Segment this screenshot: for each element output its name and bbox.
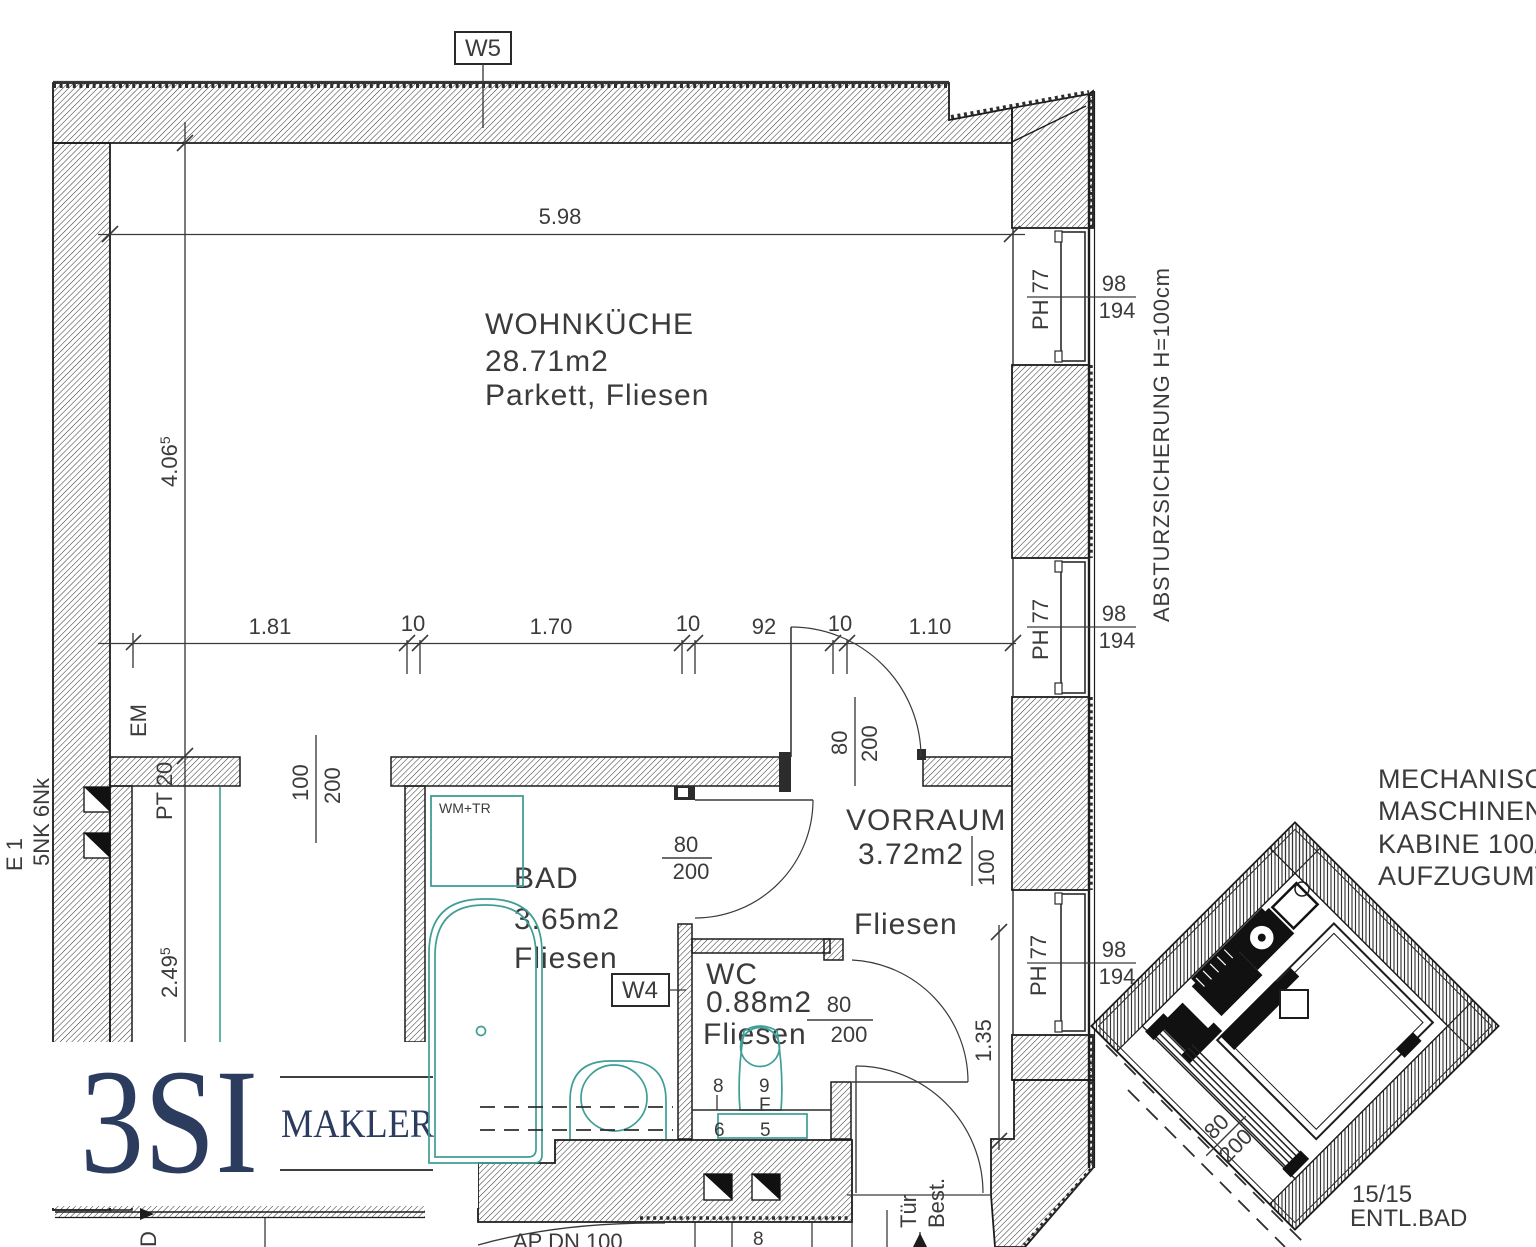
svg-text:194: 194: [1099, 628, 1136, 653]
svg-text:F: F: [759, 1095, 771, 1116]
svg-text:VORRAUM: VORRAUM: [846, 804, 1006, 837]
svg-text:W4: W4: [622, 977, 658, 1004]
svg-text:194: 194: [1099, 298, 1136, 323]
svg-text:5.98: 5.98: [539, 204, 582, 229]
svg-text:100: 100: [974, 849, 999, 886]
svg-text:Fliesen: Fliesen: [854, 908, 958, 941]
svg-text:15/15: 15/15: [1352, 1181, 1412, 1208]
svg-text:2.495: 2.495: [157, 947, 182, 998]
svg-text:10: 10: [401, 611, 425, 636]
svg-text:92: 92: [752, 614, 776, 639]
svg-text:MASCHINENRAU: MASCHINENRAU: [1378, 796, 1536, 826]
svg-text:80: 80: [674, 832, 698, 857]
svg-text:3SI: 3SI: [80, 1039, 258, 1205]
svg-text:Parkett, Fliesen: Parkett, Fliesen: [485, 379, 709, 412]
svg-text:10: 10: [828, 611, 852, 636]
svg-text:Tür: Tür: [896, 1195, 921, 1228]
svg-text:28.71m2: 28.71m2: [485, 345, 609, 378]
svg-text:200: 200: [673, 859, 710, 884]
svg-text:W5: W5: [465, 35, 501, 62]
svg-text:Fliesen: Fliesen: [703, 1018, 807, 1051]
svg-text:AP DN 100: AP DN 100: [513, 1229, 623, 1247]
svg-text:MAKLER: MAKLER: [281, 1101, 434, 1146]
svg-text:EM: EM: [126, 704, 151, 737]
svg-text:100: 100: [288, 764, 313, 801]
svg-text:PH 77: PH 77: [1028, 269, 1053, 330]
svg-text:PH 77: PH 77: [1026, 935, 1051, 996]
svg-text:5NK 6Nk: 5NK 6Nk: [29, 777, 54, 866]
svg-text:PH 77: PH 77: [1028, 599, 1053, 660]
svg-text:AUFZUGUMWEH: AUFZUGUMWEH: [1378, 861, 1536, 891]
svg-text:200: 200: [320, 767, 345, 804]
svg-text:1.70: 1.70: [530, 614, 573, 639]
svg-text:200: 200: [831, 1022, 868, 1047]
svg-text:3.72m2: 3.72m2: [858, 838, 964, 871]
svg-text:KABINE 100/80: KABINE 100/80: [1378, 829, 1536, 859]
svg-text:8: 8: [713, 1076, 724, 1097]
svg-text:ENTL.BAD: ENTL.BAD: [1350, 1205, 1467, 1232]
svg-text:1.10: 1.10: [909, 614, 952, 639]
svg-text:E 1: E 1: [2, 838, 27, 871]
svg-text:PT 20: PT 20: [152, 762, 177, 820]
svg-text:Fliesen: Fliesen: [514, 942, 618, 975]
svg-text:5: 5: [760, 1120, 771, 1141]
svg-text:10: 10: [676, 611, 700, 636]
svg-text:9: 9: [759, 1076, 770, 1097]
svg-text:ABSTURZSICHERUNG H=100cm: ABSTURZSICHERUNG H=100cm: [1149, 267, 1174, 622]
svg-text:0.88m2: 0.88m2: [706, 986, 812, 1019]
svg-text:WM+TR: WM+TR: [439, 800, 491, 816]
svg-text:3.65m2: 3.65m2: [514, 903, 620, 936]
svg-text:98: 98: [1102, 601, 1126, 626]
svg-text:Best.: Best.: [924, 1178, 949, 1228]
svg-text:80: 80: [827, 992, 851, 1017]
svg-text:D: D: [136, 1231, 161, 1247]
svg-text:98: 98: [1102, 271, 1126, 296]
svg-text:WOHNKÜCHE: WOHNKÜCHE: [485, 308, 694, 341]
svg-text:MECHANISCHER: MECHANISCHER: [1378, 764, 1536, 794]
svg-text:4.065: 4.065: [157, 436, 182, 487]
svg-text:1.35: 1.35: [971, 1019, 996, 1062]
svg-text:8: 8: [753, 1229, 764, 1247]
svg-text:98: 98: [1102, 937, 1126, 962]
svg-text:80: 80: [827, 731, 852, 755]
svg-text:1.81: 1.81: [249, 614, 292, 639]
svg-text:6: 6: [714, 1120, 725, 1141]
svg-text:200: 200: [857, 725, 882, 762]
svg-text:194: 194: [1099, 964, 1136, 989]
